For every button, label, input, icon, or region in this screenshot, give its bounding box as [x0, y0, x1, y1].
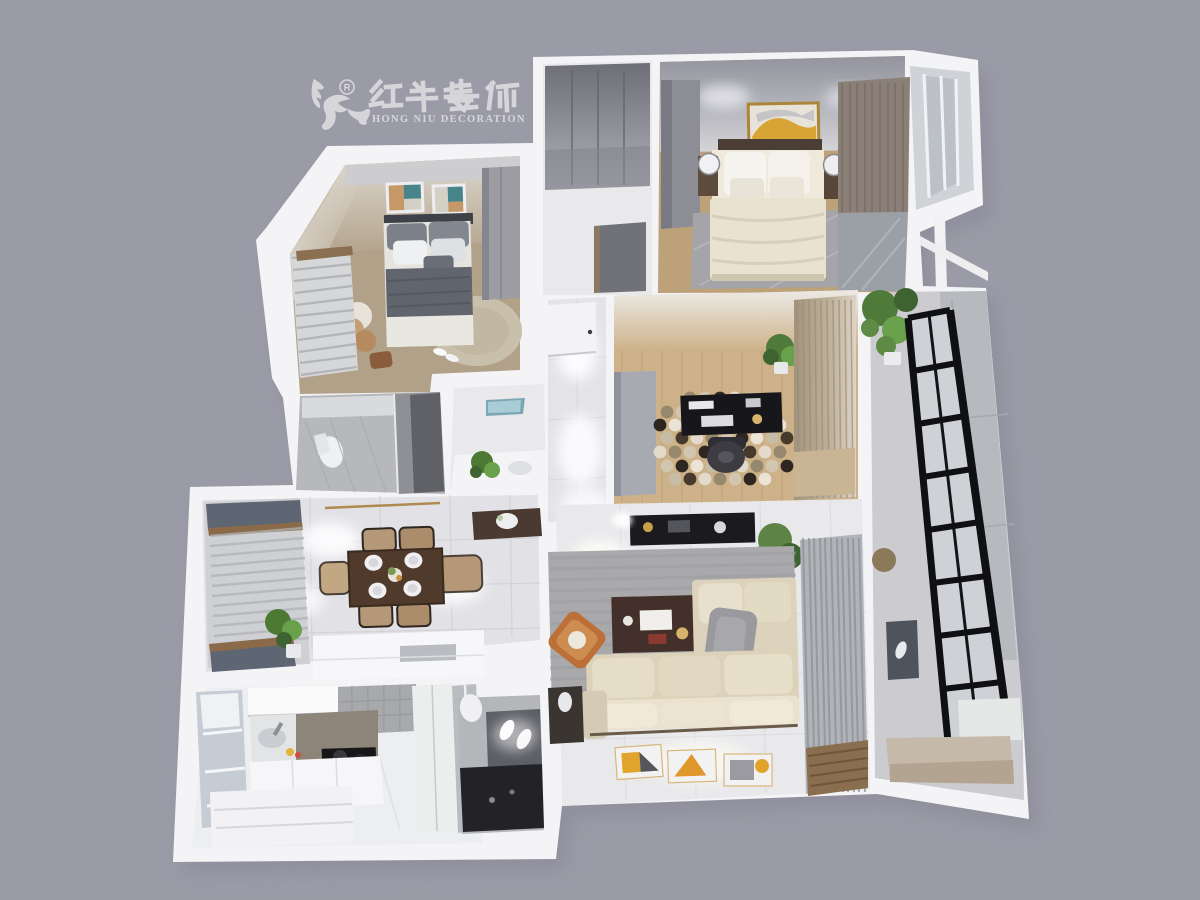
svg-text:HONG NIU DECORATION: HONG NIU DECORATION [372, 114, 526, 125]
svg-text:R: R [344, 83, 351, 94]
